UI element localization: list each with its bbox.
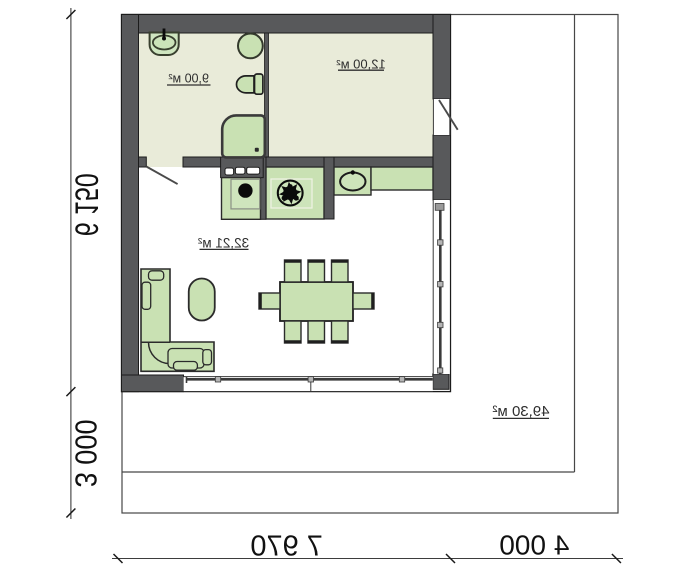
svg-text:49,30 м²: 49,30 м² [492, 403, 549, 420]
svg-text:12,00 м²: 12,00 м² [336, 56, 386, 71]
svg-text:3 000: 3 000 [68, 419, 102, 487]
svg-text:32,21 м²: 32,21 м² [197, 235, 249, 250]
svg-text:7 970: 7 970 [250, 531, 323, 563]
svg-text:6 150: 6 150 [68, 173, 104, 236]
svg-text:4 000: 4 000 [499, 530, 569, 561]
svg-text:9,00 м²: 9,00 м² [168, 71, 209, 85]
